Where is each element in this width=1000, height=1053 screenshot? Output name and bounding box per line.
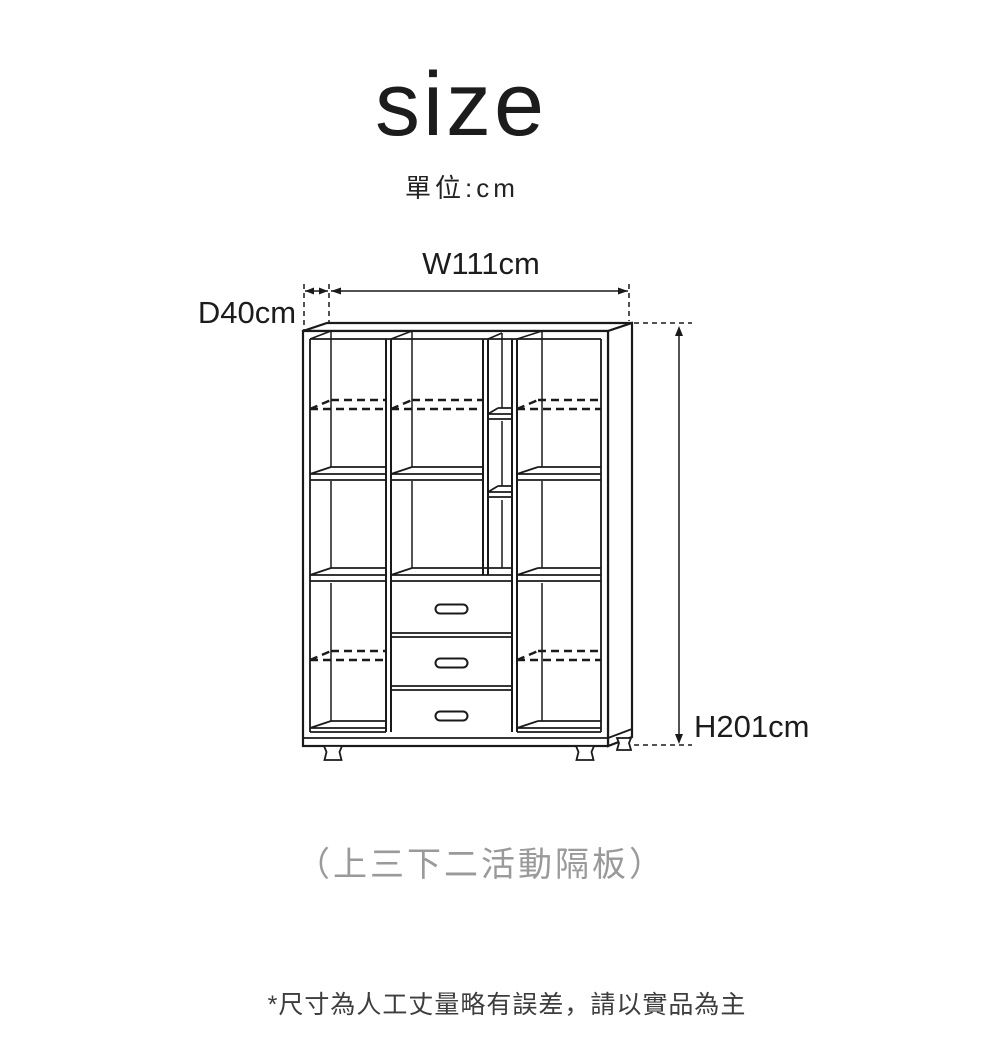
measurement-disclaimer: *尺寸為人工丈量略有誤差，請以實品為主 xyxy=(268,985,747,1021)
drawer-handle xyxy=(436,659,468,668)
drawer-handle xyxy=(436,712,468,721)
size-diagram-page: size 單位:cm xyxy=(0,0,1000,1053)
shelf-note-caption: （上三下二活動隔板） xyxy=(296,837,666,886)
cabinet-diagram xyxy=(0,0,1000,1053)
height-dimension-label: H201cm xyxy=(694,709,809,745)
width-dimension-label: W111cm xyxy=(422,246,540,282)
depth-dimension-label: D40cm xyxy=(198,295,296,331)
drawer-handle xyxy=(436,605,468,614)
cabinet-body xyxy=(303,323,632,746)
